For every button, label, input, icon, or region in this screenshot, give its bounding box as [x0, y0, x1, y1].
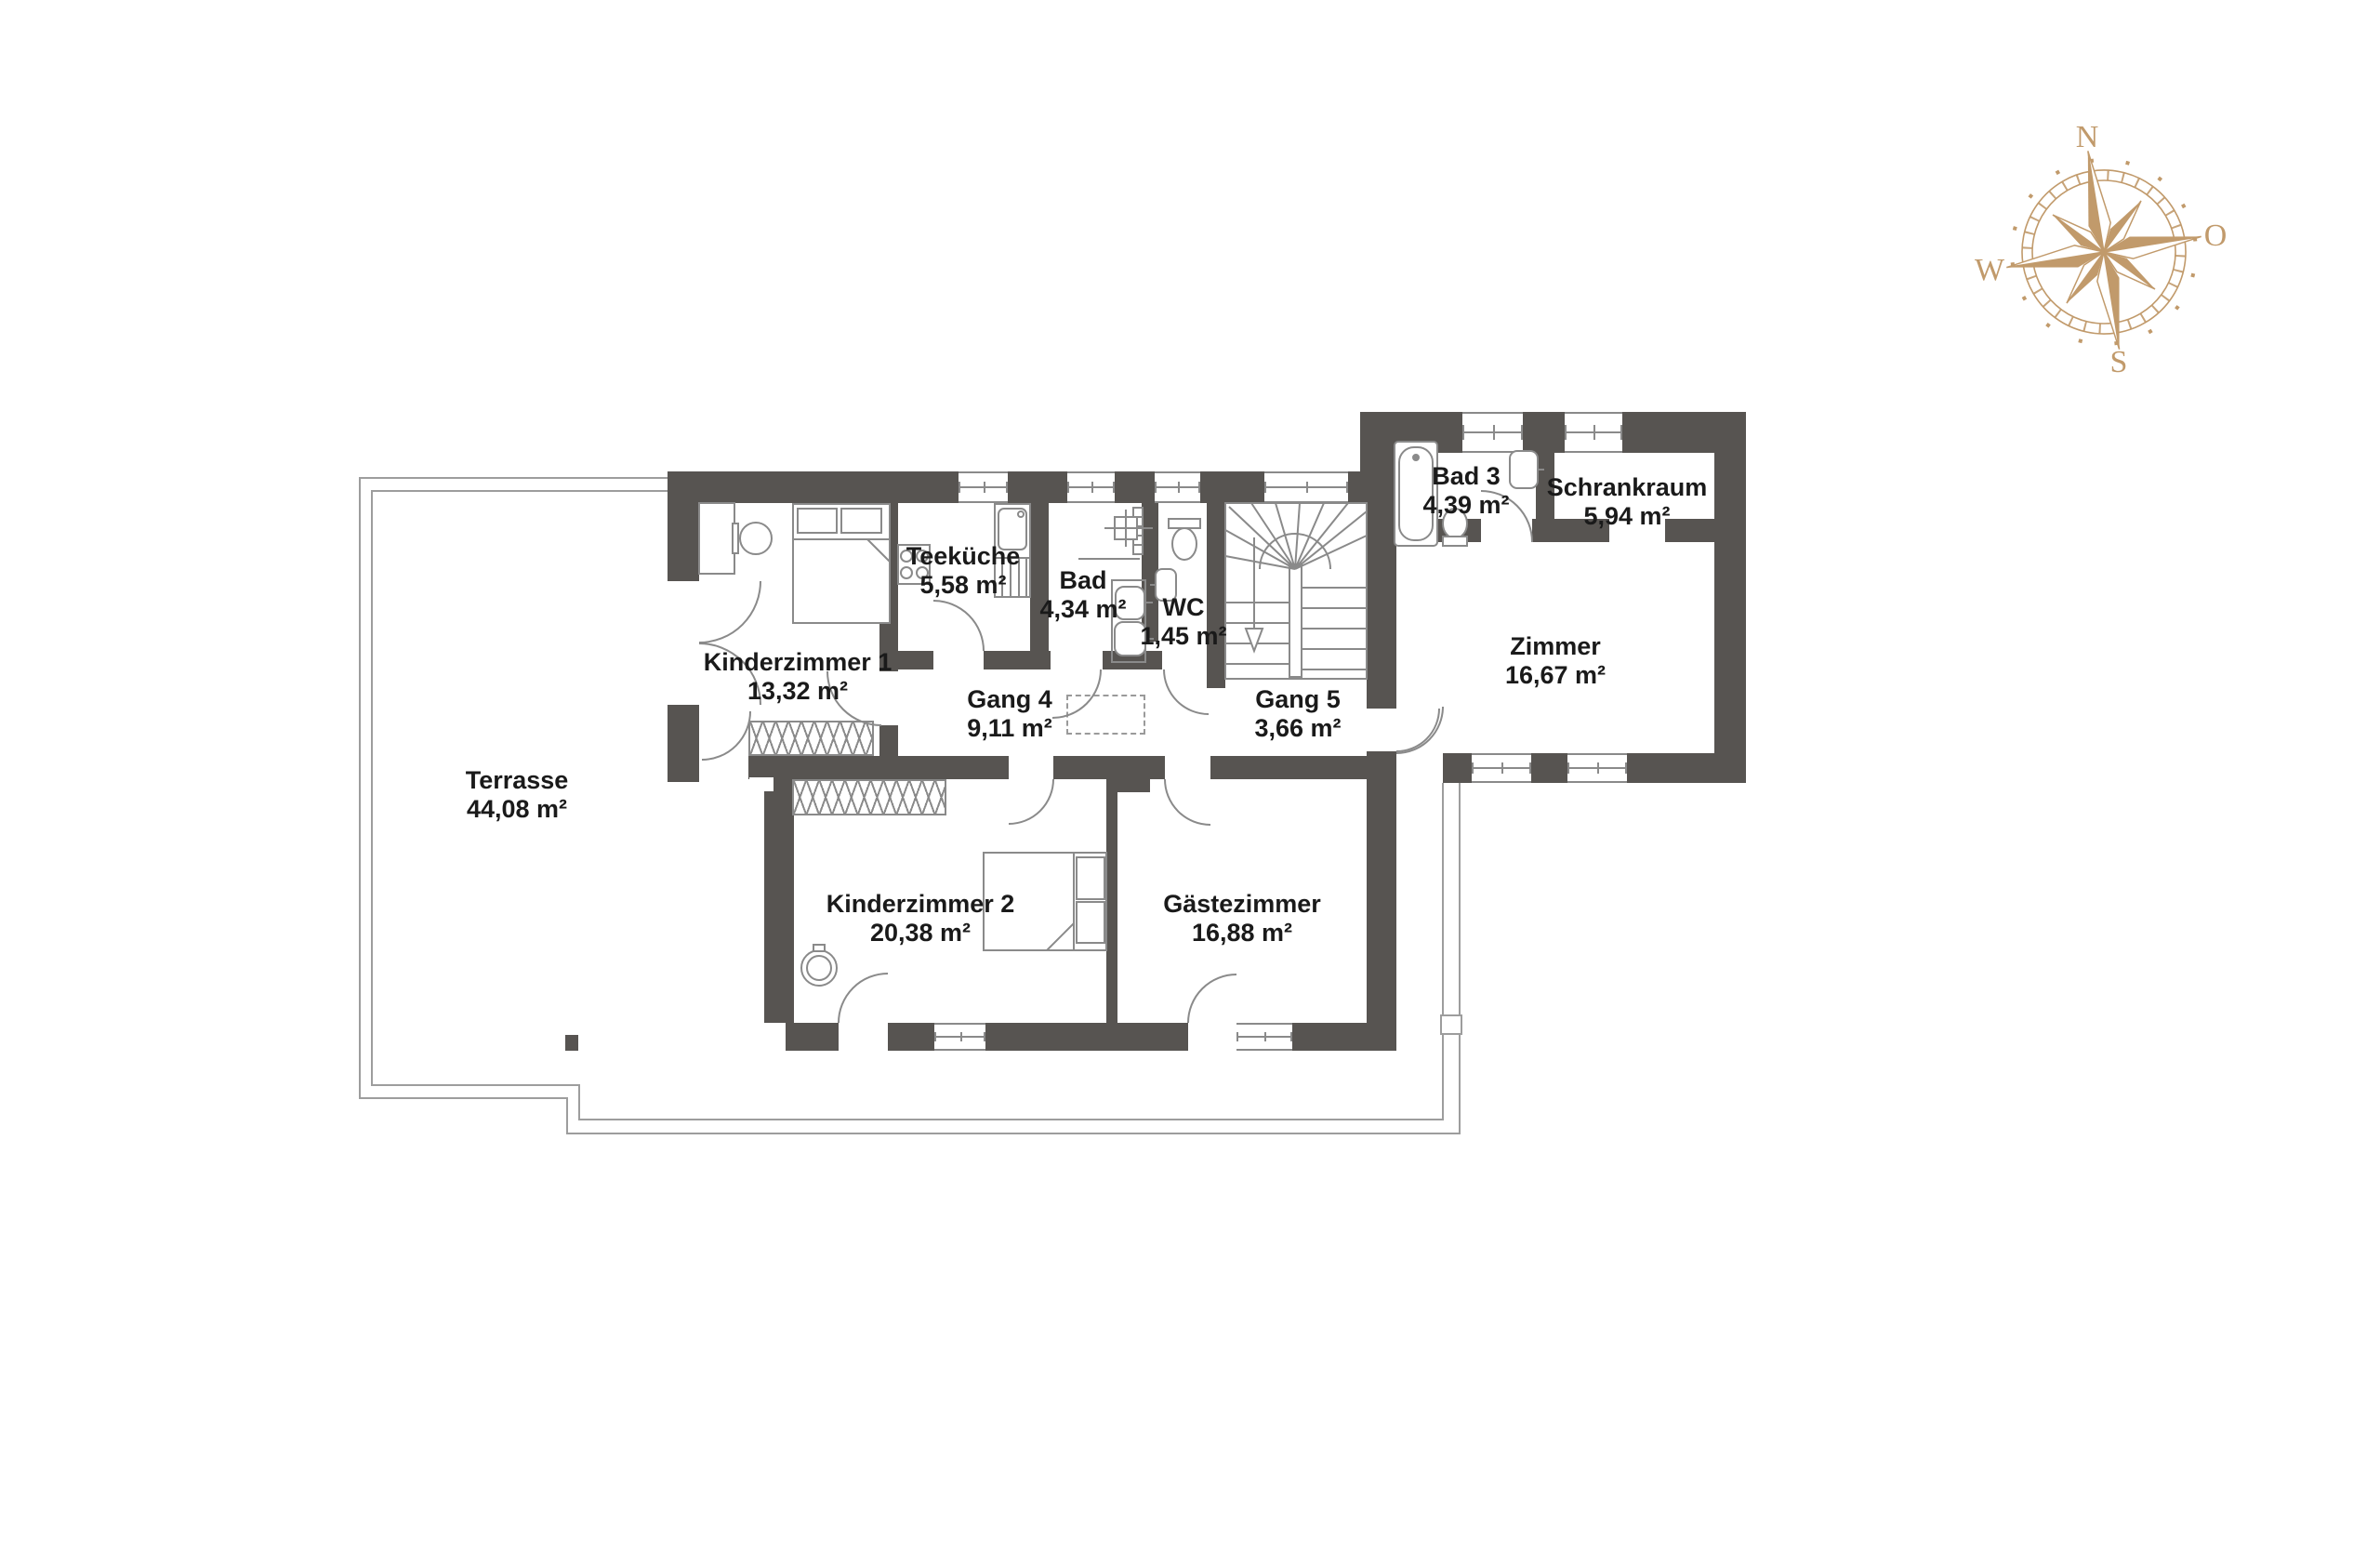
room-name: Gang 5	[1254, 685, 1341, 714]
room-label-gaestezimmer: Gästezimmer 16,88 m²	[1163, 890, 1321, 948]
room-name: Gang 4	[967, 685, 1052, 714]
room-label-teekueche: Teeküche 5,58 m²	[906, 542, 1021, 600]
room-area: 3,66 m²	[1254, 714, 1341, 743]
compass-west-label: W	[1975, 253, 2005, 287]
room-label-bad: Bad 4,34 m²	[1039, 566, 1126, 624]
shower-icon	[1078, 508, 1153, 559]
room-area: 5,58 m²	[906, 571, 1021, 600]
bed-icon	[793, 504, 890, 623]
washbasin-icon	[1510, 451, 1544, 488]
toilet-icon	[1150, 519, 1200, 601]
room-area: 44,08 m²	[466, 795, 569, 824]
room-label-gang4: Gang 4 9,11 m²	[967, 685, 1052, 743]
room-name: WC	[1140, 593, 1226, 622]
room-label-gang5: Gang 5 3,66 m²	[1254, 685, 1341, 743]
compass-east-label: O	[2204, 219, 2228, 253]
room-name: Gästezimmer	[1163, 890, 1321, 919]
room-name: Kinderzimmer 2	[826, 890, 1015, 919]
compass-south-label: S	[2110, 345, 2128, 379]
room-area: 4,39 m²	[1422, 491, 1509, 520]
room-area: 13,32 m²	[704, 677, 892, 706]
room-area: 16,67 m²	[1505, 661, 1606, 690]
room-label-bad3: Bad 3 4,39 m²	[1422, 462, 1509, 520]
room-label-wc: WC 1,45 m²	[1140, 593, 1226, 651]
room-name: Zimmer	[1505, 632, 1606, 661]
room-label-kinderzimmer2: Kinderzimmer 2 20,38 m²	[826, 890, 1015, 948]
room-area: 9,11 m²	[967, 714, 1052, 743]
room-area: 16,88 m²	[1163, 919, 1321, 948]
room-label-schrankraum: Schrankraum 5,94 m²	[1547, 473, 1708, 531]
room-area: 20,38 m²	[826, 919, 1015, 948]
room-label-kinderzimmer1: Kinderzimmer 1 13,32 m²	[704, 648, 892, 706]
stool-icon	[801, 945, 837, 986]
room-name: Teeküche	[906, 542, 1021, 571]
compass-rose-icon: N O S W	[1975, 120, 2227, 379]
room-label-terrasse: Terrasse 44,08 m²	[466, 766, 569, 824]
room-area: 1,45 m²	[1140, 622, 1226, 651]
floor-plan: N O S W Terrasse 44,08 m² Kinderzimmer 1…	[0, 0, 2380, 1564]
room-name: Schrankraum	[1547, 473, 1708, 502]
room-label-zimmer: Zimmer 16,67 m²	[1505, 632, 1606, 690]
room-name: Kinderzimmer 1	[704, 648, 892, 677]
room-name: Terrasse	[466, 766, 569, 795]
room-area: 5,94 m²	[1547, 502, 1708, 531]
room-name: Bad	[1039, 566, 1126, 595]
compass-north-label: N	[2076, 120, 2099, 154]
room-name: Bad 3	[1422, 462, 1509, 491]
desk-chair-icon	[699, 503, 772, 574]
room-area: 4,34 m²	[1039, 595, 1126, 624]
stairs-icon	[1225, 503, 1367, 679]
